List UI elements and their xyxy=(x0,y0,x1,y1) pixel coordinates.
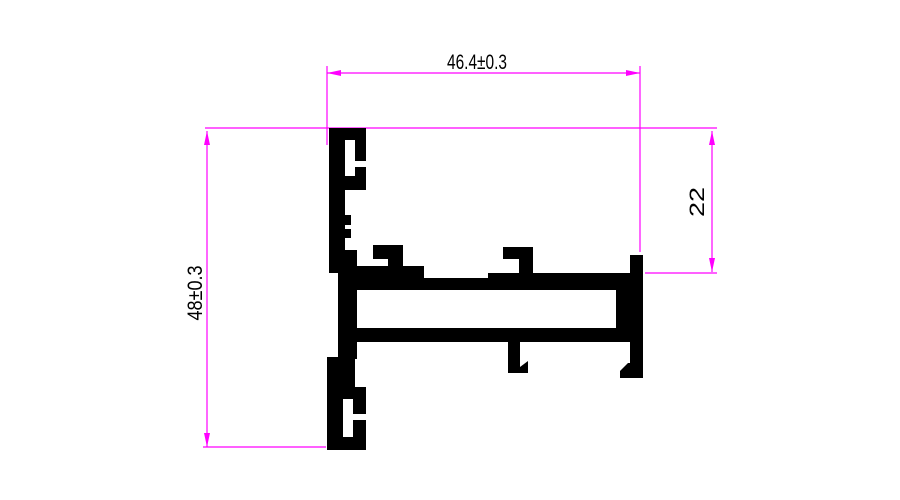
spine-lower xyxy=(338,273,357,359)
height-dimension-label: 48±0.3 xyxy=(184,266,207,321)
glazing-hook-left-cap xyxy=(373,245,403,259)
bottom-channel-arm xyxy=(343,387,366,398)
height-top-arrow-icon xyxy=(204,131,210,145)
bottom-channel-upper-lip xyxy=(353,398,366,414)
top-channel-lower-lip xyxy=(355,167,366,190)
glazing-hook-right-stem xyxy=(519,258,533,276)
right-height-dimension-label: 22 xyxy=(686,187,709,217)
spine-junction xyxy=(329,250,357,273)
top-channel-upper-lip xyxy=(355,140,366,161)
bottom-hook-foot xyxy=(520,361,528,373)
profile-cross-section-drawing: 46.4±0.3 48±0.3 22 xyxy=(0,0,900,500)
bottom-channel-lower-lip xyxy=(353,420,366,450)
spine-tooth-1 xyxy=(345,215,351,225)
technical-drawing-canvas: 46.4±0.3 48±0.3 22 xyxy=(0,0,900,500)
right-height-bottom-arrow-icon xyxy=(709,258,715,272)
glazing-hook-right-cap xyxy=(503,247,533,259)
top-web-middle xyxy=(424,278,492,290)
width-left-arrow-icon xyxy=(327,70,341,76)
height-bottom-arrow-icon xyxy=(204,433,210,447)
spine-upper xyxy=(329,128,345,258)
width-dimension-label: 46.4±0.3 xyxy=(447,51,507,74)
glazing-hook-left-stem xyxy=(388,258,403,270)
top-web-right xyxy=(488,273,633,290)
right-height-top-arrow-icon xyxy=(709,131,715,145)
profile-section xyxy=(327,128,643,450)
spine-tooth-2 xyxy=(345,229,351,238)
right-flange xyxy=(630,255,643,378)
flange-hook-foot xyxy=(620,363,630,378)
bottom-web xyxy=(340,328,643,342)
bottom-hook-stem xyxy=(508,342,520,373)
chamber-right-wall xyxy=(616,290,632,328)
width-right-arrow-icon xyxy=(626,70,640,76)
